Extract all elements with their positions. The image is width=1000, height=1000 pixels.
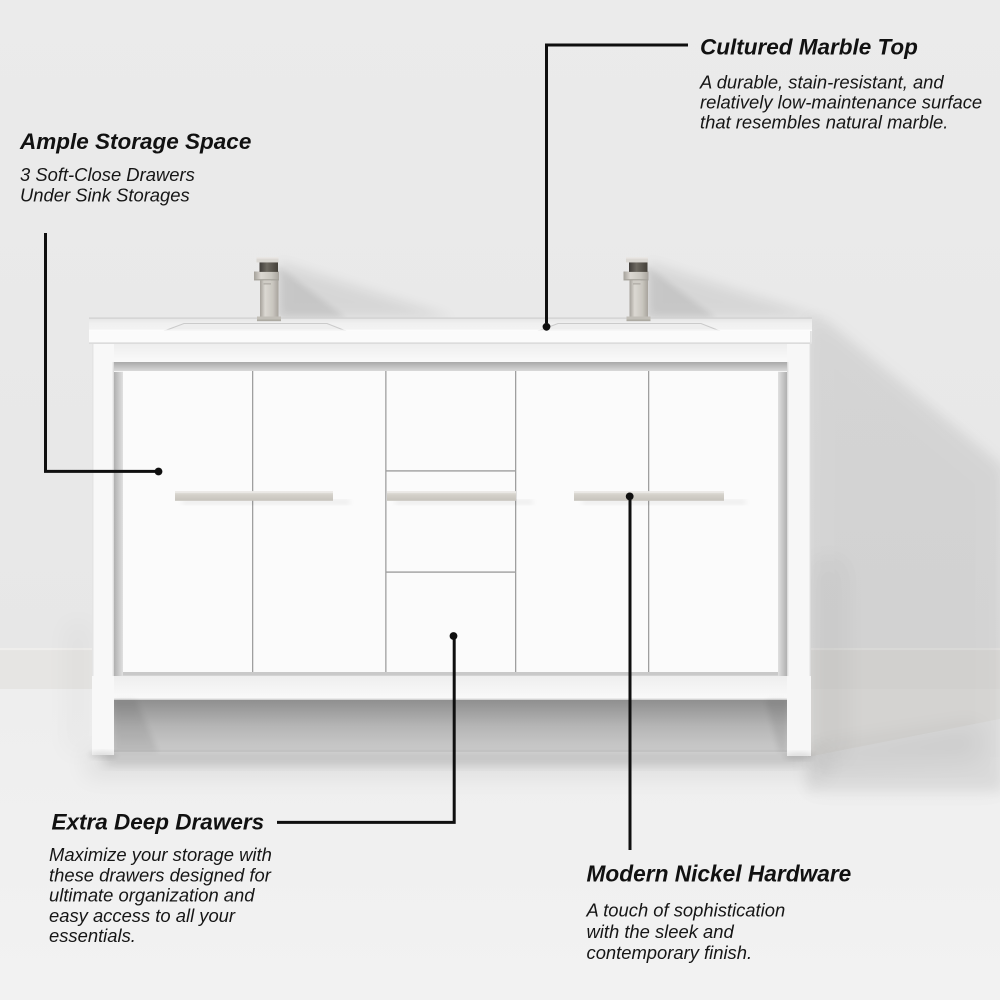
svg-text:relatively low-maintenance sur: relatively low-maintenance surface bbox=[700, 92, 982, 113]
svg-text:Cultured Marble Top: Cultured Marble Top bbox=[700, 35, 918, 60]
svg-text:Ample Storage Space: Ample Storage Space bbox=[19, 129, 251, 154]
svg-text:A touch of sophistication: A touch of sophistication bbox=[586, 900, 786, 921]
svg-text:A durable, stain-resistant, an: A durable, stain-resistant, and bbox=[699, 71, 944, 92]
svg-text:contemporary finish.: contemporary finish. bbox=[587, 942, 753, 963]
svg-text:that resembles natural marble.: that resembles natural marble. bbox=[700, 112, 948, 133]
svg-text:3 Soft-Close Drawers: 3 Soft-Close Drawers bbox=[20, 164, 195, 185]
svg-text:Under Sink Storages: Under Sink Storages bbox=[20, 185, 190, 206]
svg-text:Maximize your storage with: Maximize your storage with bbox=[49, 844, 272, 865]
svg-text:these drawers designed for: these drawers designed for bbox=[49, 864, 272, 885]
svg-text:Extra Deep Drawers: Extra Deep Drawers bbox=[52, 810, 265, 835]
svg-text:Modern Nickel Hardware: Modern Nickel Hardware bbox=[587, 861, 852, 887]
svg-text:easy access to all your: easy access to all your bbox=[49, 905, 236, 926]
svg-text:essentials.: essentials. bbox=[49, 925, 136, 946]
svg-text:with the sleek and: with the sleek and bbox=[587, 921, 735, 942]
svg-text:ultimate organization and: ultimate organization and bbox=[49, 885, 255, 906]
